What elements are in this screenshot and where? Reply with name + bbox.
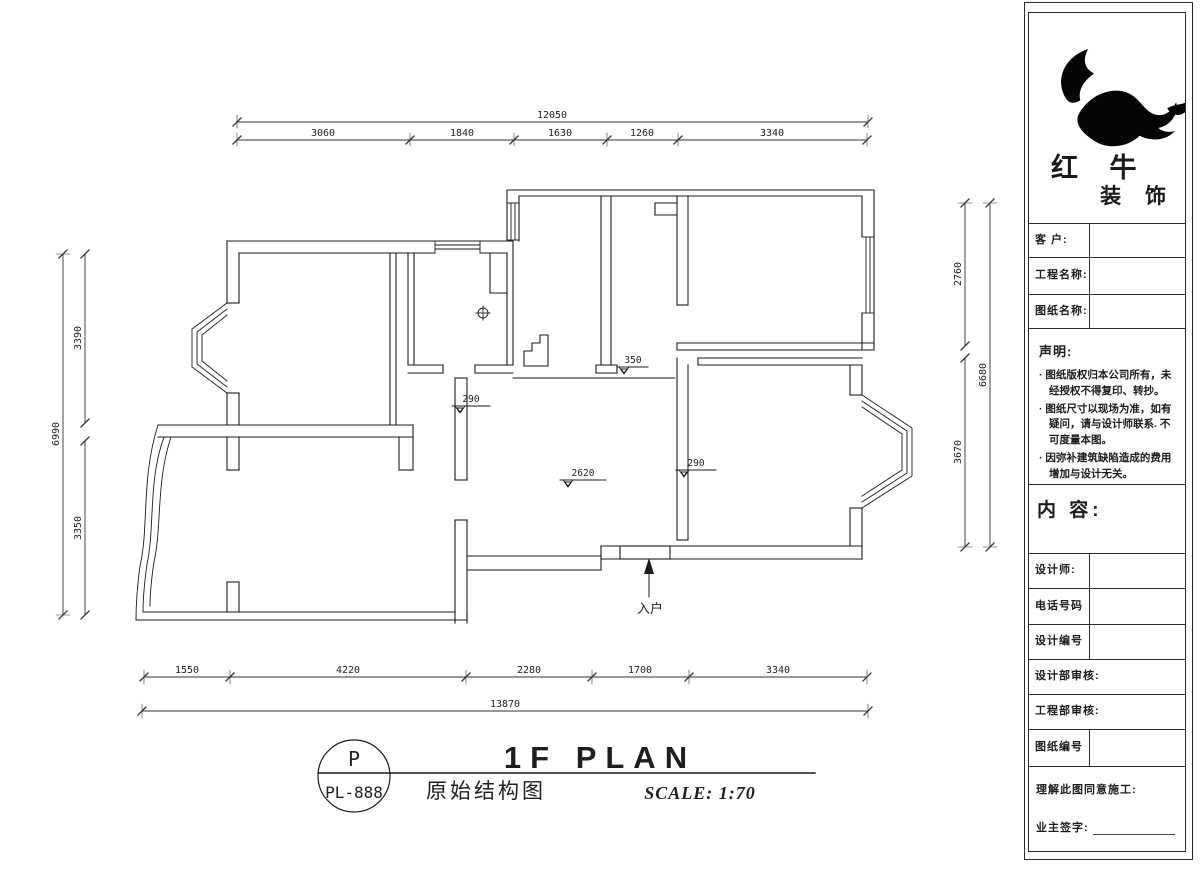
- statement-title: 声明:: [1039, 341, 1180, 360]
- dim-right-seg: 3670: [953, 440, 964, 464]
- owner-signature-line: [1093, 822, 1175, 835]
- statement-item: 图纸版权归本公司所有，未经授权不得复印、转抄。: [1037, 368, 1180, 400]
- phone-label: 电话号码: [1029, 589, 1090, 624]
- walls-living: [455, 378, 688, 623]
- customer-label: 客 户:: [1029, 224, 1090, 257]
- project-name-value: [1090, 258, 1185, 294]
- project-name-label: 工程名称:: [1029, 258, 1090, 294]
- owner-sign-label: 业主签字:: [1036, 819, 1089, 835]
- walls-bottom-left-room: [136, 425, 467, 620]
- dimension-left: 6990 3390 3350: [51, 250, 89, 619]
- eng-audit-label: 工程部审核:: [1029, 695, 1100, 729]
- dim-bottom-overall: 13870: [490, 699, 520, 710]
- level-mark-2620: 2620: [560, 468, 606, 487]
- walls-top-right-block: [507, 190, 874, 373]
- badge-letter: P: [348, 747, 360, 771]
- dimension-bottom: 1550 4220 2280 1700 3340 13870: [138, 665, 872, 718]
- title-block: 红 牛 装 饰 客 户: 工程名称: 图纸名称: 声明: 图纸版权归本公司所有，…: [1028, 12, 1186, 852]
- dim-top-seg: 3340: [760, 128, 784, 139]
- badge-code: PL-888: [325, 783, 383, 802]
- drawing-title-main: 1F PLAN: [504, 740, 696, 775]
- design-audit-label: 设计部审核:: [1029, 660, 1100, 694]
- dim-left-overall: 6990: [51, 422, 62, 446]
- phone-value: [1090, 589, 1185, 624]
- designer-label: 设计师:: [1029, 554, 1090, 588]
- agreement-label: 理解此图同意施工:: [1036, 781, 1179, 797]
- content-label: 内 容:: [1037, 495, 1103, 522]
- agreement-box: 理解此图同意施工: 业主签字:: [1029, 766, 1185, 851]
- statement-box: 声明: 图纸版权归本公司所有，未经授权不得复印、转抄。 图纸尺寸以现场为准，如有…: [1029, 328, 1185, 484]
- row-eng-audit: 工程部审核:: [1029, 694, 1185, 729]
- dim-bottom-seg: 1550: [175, 665, 199, 676]
- dim-top-seg: 3060: [311, 128, 335, 139]
- drawing-sheet: 12050 3060 1840 1630 1260 3340 1550 4220…: [0, 0, 1200, 869]
- level-value: 290: [462, 394, 479, 405]
- content-box: 内 容:: [1029, 484, 1185, 553]
- dim-bottom-seg: 3340: [766, 665, 790, 676]
- entry-label: 入户: [637, 601, 663, 616]
- statement-item: 图纸尺寸以现场为准，如有疑问，请与设计师联系. 不可度量本图。: [1037, 402, 1180, 449]
- window-left-of-trblock: [507, 203, 519, 240]
- drawing-scale: SCALE: 1:70: [644, 783, 756, 803]
- row-customer: 客 户:: [1029, 223, 1185, 257]
- row-project-name: 工程名称:: [1029, 257, 1185, 294]
- dimension-right: 2760 3670 6680: [953, 199, 997, 551]
- row-drawing-no: 图纸编号: [1029, 729, 1185, 766]
- dim-right-seg: 2760: [953, 262, 964, 286]
- drawing-title-sub: 原始结构图: [426, 780, 546, 803]
- drawing-no-label: 图纸编号: [1029, 730, 1090, 766]
- customer-value: [1090, 224, 1185, 257]
- drawing-no-value: [1090, 730, 1185, 766]
- floor-plan-canvas: 12050 3060 1840 1630 1260 3340 1550 4220…: [0, 0, 1030, 869]
- level-value: 2620: [572, 468, 595, 479]
- bay-window-right: [862, 395, 912, 508]
- bay-window-left: [192, 303, 227, 393]
- window-top-left: [435, 241, 480, 253]
- level-mark-290-right: 290: [676, 458, 716, 477]
- row-phone: 电话号码: [1029, 588, 1185, 624]
- design-no-value: [1090, 625, 1185, 659]
- statement-item: 因弥补建筑缺陷造成的费用增加与设计无关。: [1037, 451, 1180, 483]
- designer-value: [1090, 554, 1185, 588]
- level-mark-290-corridor: 290: [452, 394, 490, 413]
- company-logo-box: 红 牛 装 饰: [1029, 13, 1185, 223]
- dim-left-seg: 3390: [73, 326, 84, 350]
- row-design-audit: 设计部审核:: [1029, 659, 1185, 694]
- drawing-title: 1F PLAN 原始结构图 SCALE: 1:70: [426, 740, 756, 803]
- light-symbol: [476, 306, 490, 320]
- dim-bottom-seg: 4220: [336, 665, 360, 676]
- walls-top-left-block: [158, 241, 675, 470]
- level-value: 290: [687, 458, 704, 469]
- design-no-label: 设计编号: [1029, 625, 1090, 659]
- drawing-name-label: 图纸名称:: [1029, 295, 1090, 328]
- walls-right-room: [677, 358, 862, 559]
- level-marks: 350 290 2620 290: [452, 355, 716, 487]
- dim-top-seg: 1840: [450, 128, 474, 139]
- dim-top-overall: 12050: [537, 110, 567, 121]
- entry-threshold: [620, 546, 670, 559]
- dim-top-seg: 1260: [630, 128, 654, 139]
- steps: [524, 335, 548, 366]
- drawing-name-value: [1090, 295, 1185, 328]
- row-design-no: 设计编号: [1029, 624, 1185, 659]
- row-designer: 设计师:: [1029, 553, 1185, 588]
- company-subname: 装 饰: [1100, 180, 1175, 210]
- dimension-top: 12050 3060 1840 1630 1260 3340: [233, 110, 872, 146]
- dim-right-overall: 6680: [978, 363, 989, 387]
- level-value: 350: [624, 355, 641, 366]
- curved-wall: [136, 425, 171, 620]
- window-right-trblock: [862, 237, 874, 313]
- dim-top-seg: 1630: [548, 128, 572, 139]
- entry-arrow: 入户: [637, 558, 663, 616]
- dim-left-seg: 3350: [73, 516, 84, 540]
- level-mark-350: 350: [618, 355, 648, 374]
- dim-bottom-seg: 2280: [517, 665, 541, 676]
- dim-bottom-seg: 1700: [628, 665, 652, 676]
- row-drawing-name: 图纸名称:: [1029, 294, 1185, 328]
